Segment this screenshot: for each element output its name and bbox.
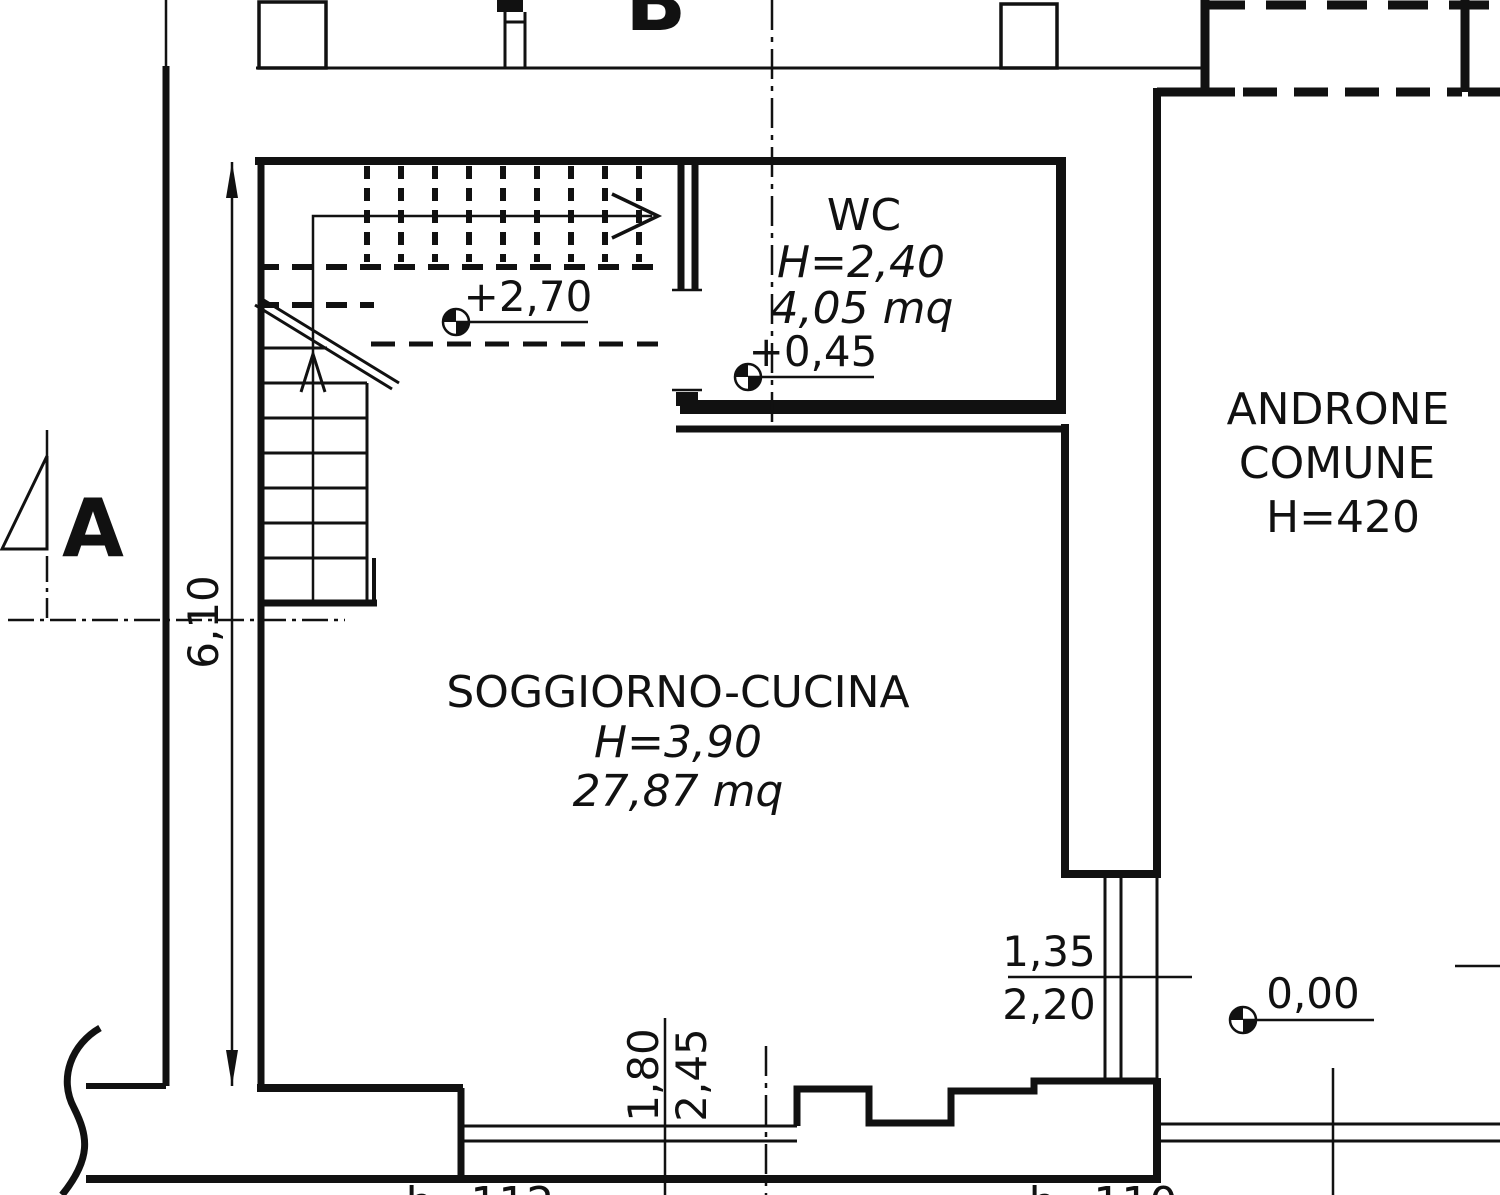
soggiorno-area-label: 27,87 mq xyxy=(573,766,784,817)
section-b-letter: B' xyxy=(625,0,710,49)
androne-label-line2: COMUNE xyxy=(1239,438,1435,489)
level-mezzanine-label: +2,70 xyxy=(464,272,593,321)
upper-flight-dashed xyxy=(367,166,639,262)
wc-room-label: WC xyxy=(827,190,901,241)
top-pier-right xyxy=(1001,4,1057,68)
section-a-triangle xyxy=(2,456,47,549)
passage-height-label: 2,20 xyxy=(1002,980,1096,1029)
top-black-pier xyxy=(497,0,523,12)
window-height-label: 2,45 xyxy=(667,1028,716,1122)
wc-height-label: H=2,40 xyxy=(777,237,945,288)
androne-label-line1: ANDRONE xyxy=(1227,384,1450,435)
break-line-squiggle xyxy=(62,1028,100,1195)
top-pier-left xyxy=(259,2,326,68)
staircase xyxy=(255,166,658,604)
soggiorno-room-label: SOGGIORNO-CUCINA xyxy=(446,667,909,718)
level-ground-label: 0,00 xyxy=(1266,969,1360,1018)
floor-plan-canvas: WC H=2,40 4,05 mq SOGGIORNO-CUCINA H=3,9… xyxy=(0,0,1500,1195)
dim-arrow-down xyxy=(226,1050,238,1086)
section-a-letter: A xyxy=(62,482,124,575)
stair-break-line xyxy=(262,299,399,383)
floor-plan-drawing: WC H=2,40 4,05 mq SOGGIORNO-CUCINA H=3,9… xyxy=(0,0,1500,1195)
androne-height-label: H=420 xyxy=(1266,492,1420,543)
entry-threshold xyxy=(797,1081,1157,1126)
level-wc-label: +0,45 xyxy=(749,327,878,376)
section-a-line xyxy=(8,430,345,620)
clipped-label-right: h=110 xyxy=(1029,1178,1178,1195)
room-depth-label: 6,10 xyxy=(179,575,228,669)
section-markers xyxy=(2,0,772,1195)
dim-arrow-up xyxy=(226,162,238,198)
soggiorno-height-label: H=3,90 xyxy=(594,717,762,768)
window-width-label: 1,80 xyxy=(619,1028,668,1122)
clipped-label-left: h=112 xyxy=(406,1178,555,1195)
passage-width-label: 1,35 xyxy=(1002,927,1096,976)
